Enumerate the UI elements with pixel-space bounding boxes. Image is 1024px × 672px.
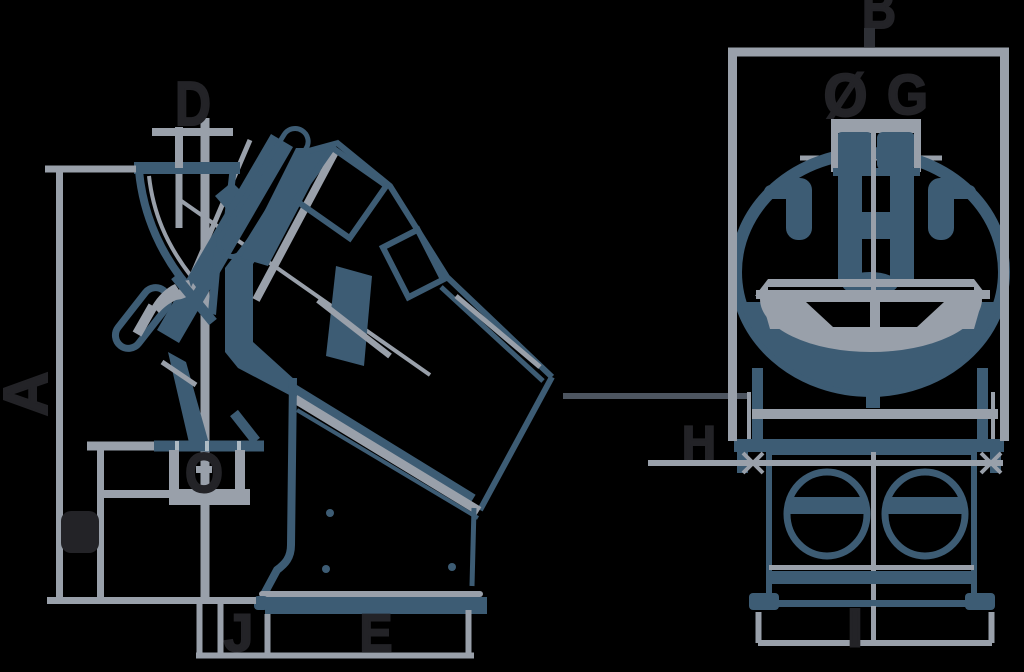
svg-text:G: G: [887, 63, 928, 127]
svg-text:I: I: [848, 599, 863, 658]
svg-text:D: D: [175, 70, 211, 139]
svg-text:J: J: [224, 604, 253, 663]
svg-text:A: A: [0, 372, 61, 417]
svg-text:O: O: [185, 441, 223, 504]
svg-text:H: H: [682, 416, 716, 469]
svg-text:Ø: Ø: [824, 62, 868, 129]
svg-text:E: E: [360, 604, 393, 663]
